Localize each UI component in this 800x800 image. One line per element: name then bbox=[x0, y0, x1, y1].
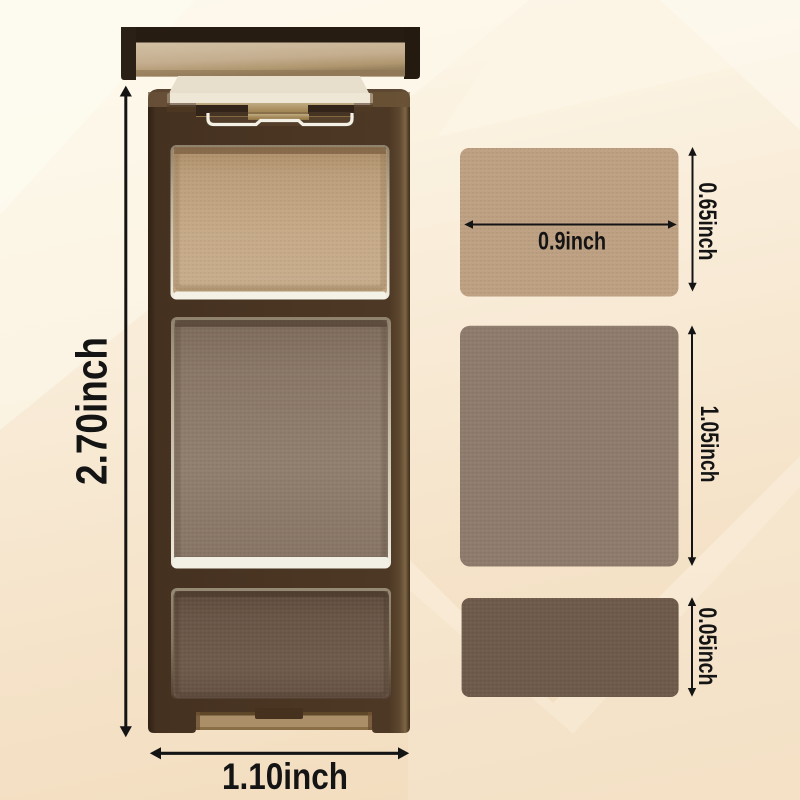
svg-text:0.65inch: 0.65inch bbox=[693, 182, 721, 260]
svg-text:0.05inch: 0.05inch bbox=[693, 607, 721, 685]
svg-text:1.10inch: 1.10inch bbox=[222, 756, 348, 797]
svg-text:0.9inch: 0.9inch bbox=[538, 228, 606, 256]
svg-text:2.70inch: 2.70inch bbox=[68, 337, 117, 485]
svg-text:1.05inch: 1.05inch bbox=[695, 406, 723, 483]
